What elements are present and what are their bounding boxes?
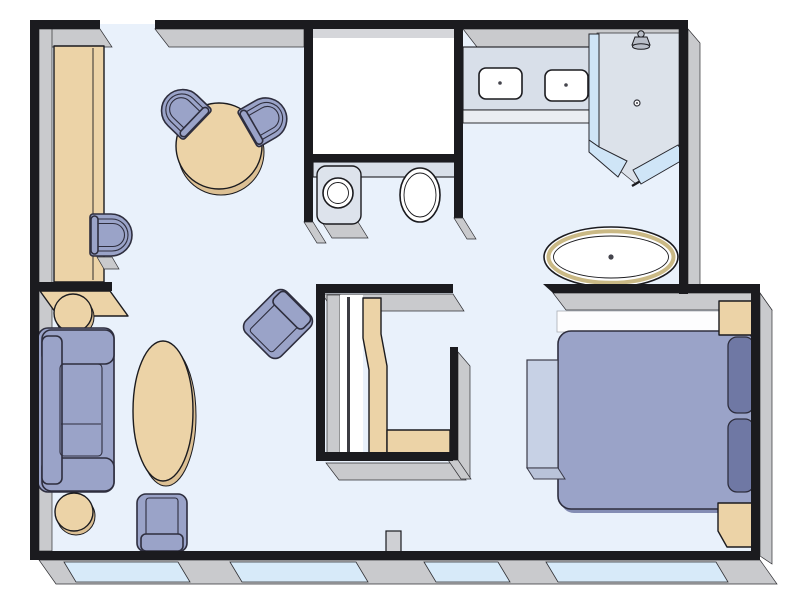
wall-wc-left	[304, 20, 313, 222]
wardrobe-wall-left	[316, 284, 325, 460]
wardrobe-shelf	[387, 430, 450, 455]
headboard-shelf	[557, 311, 719, 332]
wall-right-bedroom	[751, 288, 760, 560]
sofa-back	[42, 336, 62, 484]
shower-glass-panel	[589, 34, 599, 147]
closet-room-top-shade	[313, 29, 454, 38]
wardrobe-interior	[340, 295, 363, 453]
wall-bottom	[30, 551, 760, 560]
bed-mattress	[558, 331, 754, 509]
wall-face-bedroom-right	[760, 293, 772, 564]
balcony-window	[546, 562, 728, 582]
toilet	[400, 168, 440, 222]
coffee-table	[133, 341, 193, 481]
balcony-window	[64, 562, 190, 582]
wardrobe-face-left	[327, 295, 340, 453]
desk-chair	[90, 214, 132, 256]
wardrobe-door-track	[347, 297, 350, 453]
balcony-window	[230, 562, 368, 582]
closet-room	[313, 29, 454, 154]
wall-face-top-middle	[155, 29, 304, 47]
bed-bench-foot	[527, 468, 565, 479]
floor-plan-page	[0, 0, 800, 604]
wall-wc-right	[454, 20, 463, 218]
wall-bathroom-bedroom-divider	[543, 284, 760, 293]
wall-closet-bottom	[313, 154, 454, 162]
half-wall-desk-end	[39, 282, 112, 291]
wall-face-right-upper	[688, 29, 700, 300]
balcony-window	[424, 562, 510, 582]
wardrobe-face-right-stub	[458, 352, 470, 478]
side-table-lower	[55, 493, 93, 531]
bed-bench	[527, 360, 558, 468]
pillow-lower	[728, 419, 754, 492]
wall-right-upper	[679, 20, 688, 294]
wardrobe-wall-bottom	[316, 452, 453, 461]
armchair	[137, 494, 187, 552]
tub-drain-icon	[608, 254, 613, 259]
bathtub	[544, 227, 678, 287]
vanity-counter-edge	[463, 110, 597, 123]
pillow-upper	[728, 337, 754, 413]
wall-left	[30, 20, 39, 560]
side-table-upper	[54, 294, 92, 332]
wall-top-main	[155, 20, 688, 29]
wardrobe-face-bottom	[326, 463, 466, 480]
nightstand-upper	[719, 301, 753, 335]
sofa	[38, 328, 114, 492]
window-mullion-pillar	[386, 531, 401, 554]
sink-drain-icon	[564, 83, 568, 87]
nightstand-lower	[718, 503, 753, 547]
wardrobe-wall-top	[316, 284, 453, 293]
shower-drain-icon	[634, 100, 640, 106]
wardrobe-wall-right-stub	[450, 347, 458, 460]
wall-top-left-segment	[30, 20, 100, 29]
sink-drain-icon	[498, 81, 502, 85]
floor-plan-svg	[0, 0, 800, 604]
